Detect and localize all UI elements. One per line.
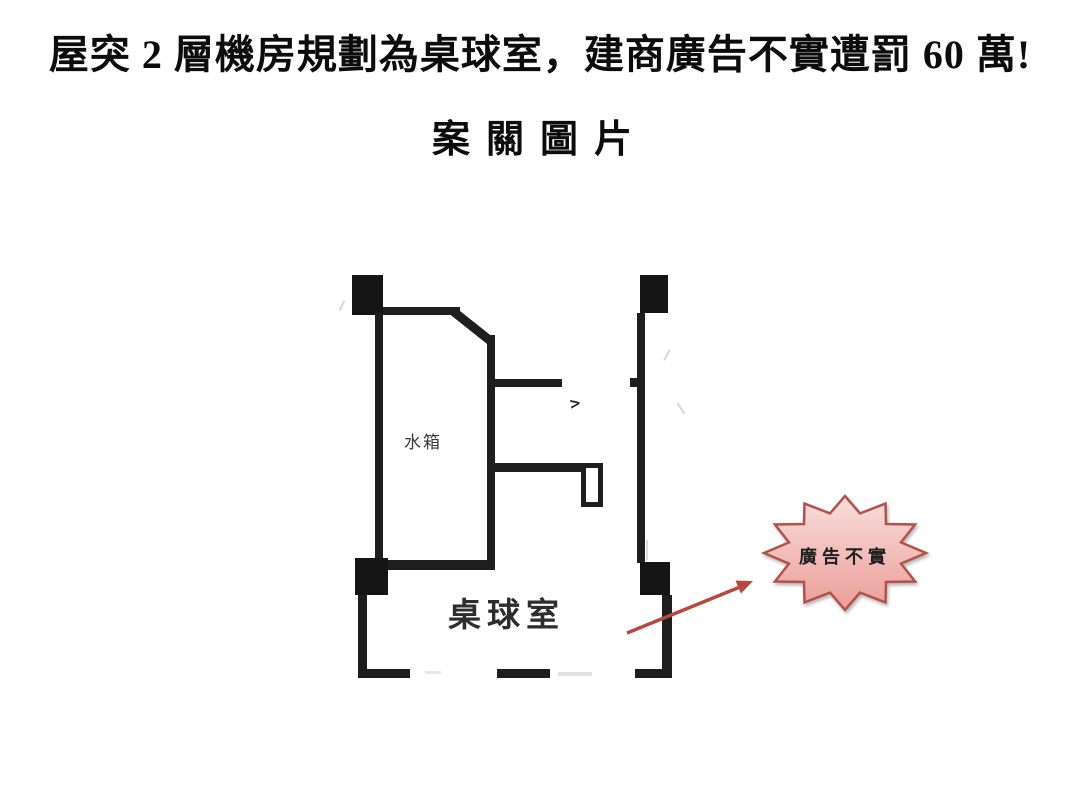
- document-page: 屋突 2 層機房規劃為桌球室，建商廣告不實遭罰 60 萬! 案關圖片 水箱 桌球…: [0, 0, 1080, 804]
- starburst-label: 廣告不實: [763, 543, 927, 569]
- annotation-overlay: [0, 0, 1080, 804]
- callout-arrow-line: [627, 587, 740, 633]
